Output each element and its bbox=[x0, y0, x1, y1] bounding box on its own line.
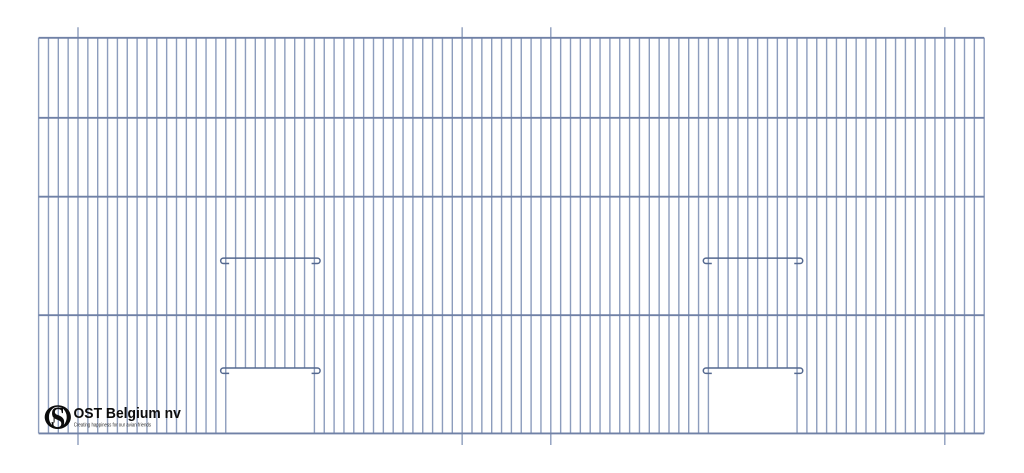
svg-text:Creating happiness for our avi: Creating happiness for our avian friends bbox=[74, 423, 151, 429]
svg-text:J: J bbox=[51, 415, 56, 427]
svg-text:OST Belgium nv: OST Belgium nv bbox=[74, 405, 182, 422]
